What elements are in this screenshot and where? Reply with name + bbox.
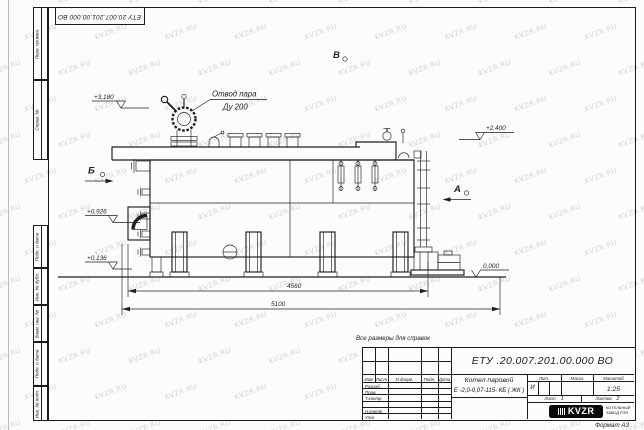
callout-text-line1: Отвод пара xyxy=(212,90,257,99)
feed-pump xyxy=(411,247,464,275)
spring-icon xyxy=(558,408,566,415)
steam-outlet-valve xyxy=(161,94,197,147)
tb-line xyxy=(363,361,451,362)
drawing-sheet: KVZR.RUKVZR.RUKVZR.RUKVZR.RUKVZR.RUKVZR.… xyxy=(0,0,644,430)
tb-product-name-1: Котел паровой xyxy=(451,377,527,384)
tb-sheet-label: Лист xyxy=(544,396,555,401)
elevation-label: 0,000 xyxy=(483,263,499,270)
tb-col-podp: Подп. xyxy=(421,377,438,382)
tb-col-ndokum: N докум. xyxy=(388,377,421,382)
tb-row-utv: Утв. xyxy=(365,415,375,420)
tb-lit-header: Лит. xyxy=(527,376,561,381)
dimension-4560: 4560 xyxy=(128,244,428,297)
dimension-5100: 5100 xyxy=(122,244,500,315)
reference-note: Все размеры для справок xyxy=(356,335,430,342)
dimension-text: 4560 xyxy=(287,283,302,290)
steam-outlet-callout: Отвод пара Ду 200 xyxy=(192,90,267,112)
elevation-mark-0000: 0,000 xyxy=(472,263,510,277)
view-label-b: Б xyxy=(88,166,95,177)
elevation-label: +2,400 xyxy=(486,125,506,132)
callout-text-line2: Ду 200 xyxy=(222,103,248,112)
elevation-mark-0136: +0,136 xyxy=(85,255,132,269)
boiler-body xyxy=(112,142,414,257)
tb-col-data: Дата xyxy=(438,377,451,382)
dimension-text: 5100 xyxy=(271,301,286,308)
tb-line xyxy=(527,381,634,382)
company-name: КОТЕЛЬНЫЙ ЗАВОД РЭП xyxy=(606,406,630,415)
tb-row-prov: Пров. xyxy=(365,390,377,395)
elevation-label: +0,136 xyxy=(87,255,107,262)
view-arrow-b: Б xyxy=(85,166,114,184)
format-note: Формат А3 xyxy=(584,422,640,429)
tb-sheet-cell: Лист 1 xyxy=(527,396,581,402)
tb-line xyxy=(388,348,389,419)
tb-lit-value: И xyxy=(527,385,538,391)
elevation-label: +0,926 xyxy=(87,209,107,216)
elevation-mark-0926: +0,926 xyxy=(85,209,140,223)
water-level-gauges xyxy=(338,160,378,191)
tb-row-tkontr: Т.контр xyxy=(365,396,382,401)
tb-scale-value: 1:25 xyxy=(593,386,634,393)
tb-line xyxy=(538,381,539,395)
kvzr-logo-text: KVZR xyxy=(568,406,595,416)
company-name-line2: ЗАВОД РЭП xyxy=(606,411,630,416)
tb-line xyxy=(527,402,634,403)
tb-sheets-label: Листов xyxy=(596,396,612,401)
view-label-v: В xyxy=(333,50,347,61)
tb-sheets-value: 2 xyxy=(617,396,620,402)
tb-doc-number: ЕТУ .20.007.201.00.000 ВО xyxy=(451,355,634,367)
tb-row-nkontr: Н.контр xyxy=(365,409,382,414)
kvzr-logo: KVZR xyxy=(549,405,603,418)
view-circle-icon xyxy=(100,172,104,176)
tb-product-name-2: Е -2,0-0,07-115- КБ ( ЖК ) xyxy=(451,388,527,394)
tb-sheets-cell: Листов 2 xyxy=(581,396,634,402)
view-arrow-a: А xyxy=(443,184,472,202)
tb-line xyxy=(363,401,451,402)
elevation-mark-3180: +3,180 xyxy=(92,94,149,108)
title-block: ЕТУ .20.007.201.00.000 ВО Изм. Лист N до… xyxy=(362,347,636,421)
tb-line xyxy=(451,397,527,398)
tb-line xyxy=(421,348,422,419)
tb-line xyxy=(549,381,550,395)
view-circle-icon xyxy=(464,191,468,195)
tb-col-izm: Изм. xyxy=(363,377,375,382)
downcomer-pipe xyxy=(414,151,430,247)
view-label-v-text: В xyxy=(333,50,340,61)
deck-safety-valve xyxy=(209,131,224,147)
tb-col-list: Лист xyxy=(375,377,388,382)
tb-mass-header: Масса xyxy=(561,376,593,381)
tb-sheet-value: 1 xyxy=(561,396,564,402)
view-circle-icon xyxy=(343,57,347,61)
tb-line xyxy=(438,348,439,419)
elevation-mark-2400: +2,400 xyxy=(459,125,514,140)
tb-scale-header: Масштаб xyxy=(593,376,634,381)
elevation-label: +3,180 xyxy=(94,94,114,101)
deck-hatches xyxy=(228,134,300,148)
burner-box xyxy=(128,207,150,240)
view-label-a: А xyxy=(453,184,461,195)
tb-row-razrab: Разраб. xyxy=(365,384,381,389)
